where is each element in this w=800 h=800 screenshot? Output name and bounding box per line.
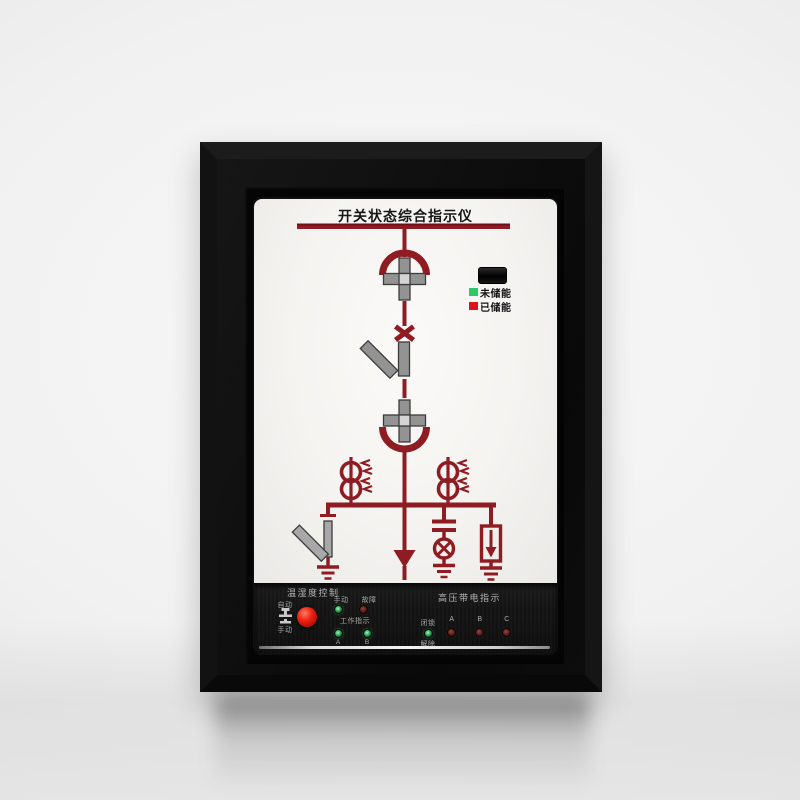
phase-c-label: C [504, 616, 510, 623]
legend-not-charged: 未储能 [469, 287, 512, 297]
disconnector-blades [360, 341, 409, 378]
work-indicator-label: 工作指示 [340, 616, 370, 626]
phase-a-led [447, 628, 456, 637]
legend-charged: 已储能 [469, 301, 512, 311]
phase-a-label: A [449, 616, 454, 623]
surge-arrester [480, 505, 502, 580]
ground-center-icon [433, 566, 455, 578]
breaker-truck-upper [384, 258, 426, 300]
red-swatch-icon [469, 302, 478, 310]
lock-led [424, 629, 433, 638]
fault-led-label: 故障 [362, 595, 377, 605]
phase-c-led [502, 628, 511, 637]
lock-label: 闭锁 [421, 618, 436, 628]
fault-led [359, 605, 368, 614]
work-a-led [334, 629, 343, 638]
work-b-label: B [365, 639, 369, 646]
ct-right-icon [439, 457, 470, 503]
ct-left-icon [342, 457, 373, 503]
feeder-arrow [394, 505, 416, 580]
mimic-panel: 开关状态综合指示仪 [254, 199, 557, 583]
busbar [297, 224, 510, 230]
device-reflection [215, 696, 590, 791]
ground-left-icon [317, 567, 339, 579]
legend-display-window [478, 267, 507, 284]
single-line-diagram [254, 199, 557, 583]
live-display-lamp [432, 505, 456, 577]
control-panel: 温湿度控制 高压带电指示 自动 手动 手动 故障 [254, 583, 557, 653]
manual-position-icon [279, 619, 292, 624]
ground-right-icon [480, 568, 502, 580]
contact-x-mark [396, 327, 414, 341]
work-b-led [363, 629, 372, 638]
hv-live-heading: 高压带电指示 [438, 591, 501, 604]
temp-humidity-heading: 温湿度控制 [287, 586, 340, 599]
phase-b-led [475, 628, 484, 637]
breaker-truck-lower [384, 400, 426, 442]
phase-b-label: B [477, 616, 482, 623]
switch-status-indicator-device: 开关状态综合指示仪 [200, 142, 602, 692]
manual-led-label: 手动 [334, 595, 349, 605]
studio-background: 开关状态综合指示仪 [0, 0, 800, 800]
earthing-switch [292, 505, 339, 579]
green-swatch-icon [469, 288, 478, 296]
auto-position-icon [279, 608, 292, 617]
display-glass: 开关状态综合指示仪 [253, 197, 558, 655]
temp-control-push-button[interactable] [297, 607, 317, 627]
work-a-label: A [336, 639, 340, 646]
manual-label: 手动 [278, 625, 293, 635]
manual-led [334, 605, 343, 614]
panel-trim-line [259, 646, 550, 649]
